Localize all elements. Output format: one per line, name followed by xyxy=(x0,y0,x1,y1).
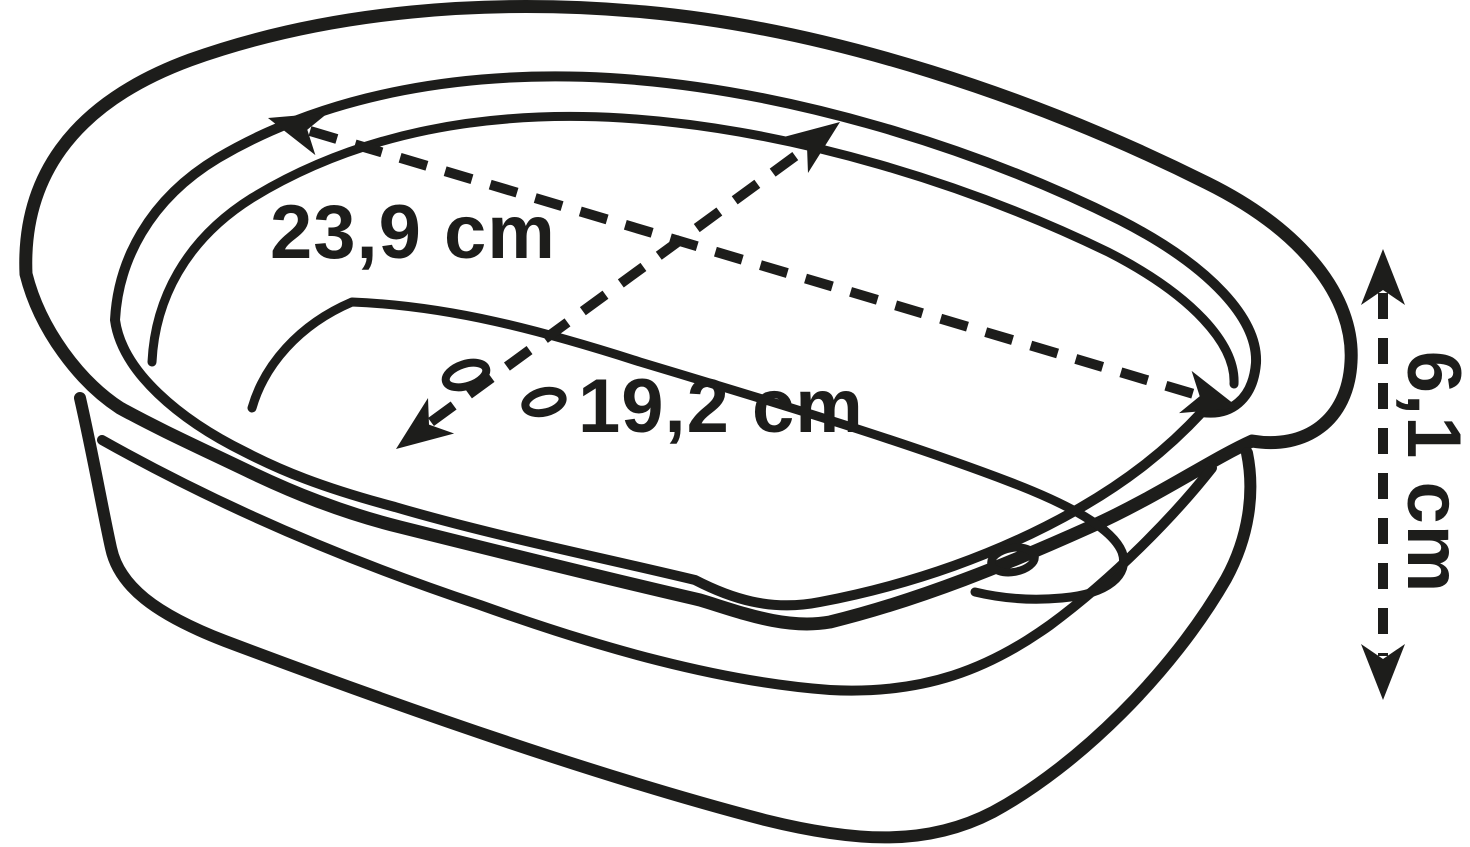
diagram-stage: 23,9 cm 19,2 cm 6,1 cm xyxy=(0,0,1470,847)
tray-body-base-outline xyxy=(80,398,1250,837)
width-dimension-label: 23,9 cm xyxy=(270,190,556,275)
depth-dimension-label: 19,2 cm xyxy=(578,364,864,449)
drainage-hole-2 xyxy=(523,387,565,417)
product-dimension-diagram: 23,9 cm 19,2 cm 6,1 cm xyxy=(0,0,1470,847)
height-arrowhead-bottom xyxy=(1361,644,1405,700)
depth-dimension: 19,2 cm xyxy=(383,104,864,466)
height-dimension: 6,1 cm xyxy=(1361,249,1470,700)
height-dimension-label: 6,1 cm xyxy=(1391,351,1470,594)
